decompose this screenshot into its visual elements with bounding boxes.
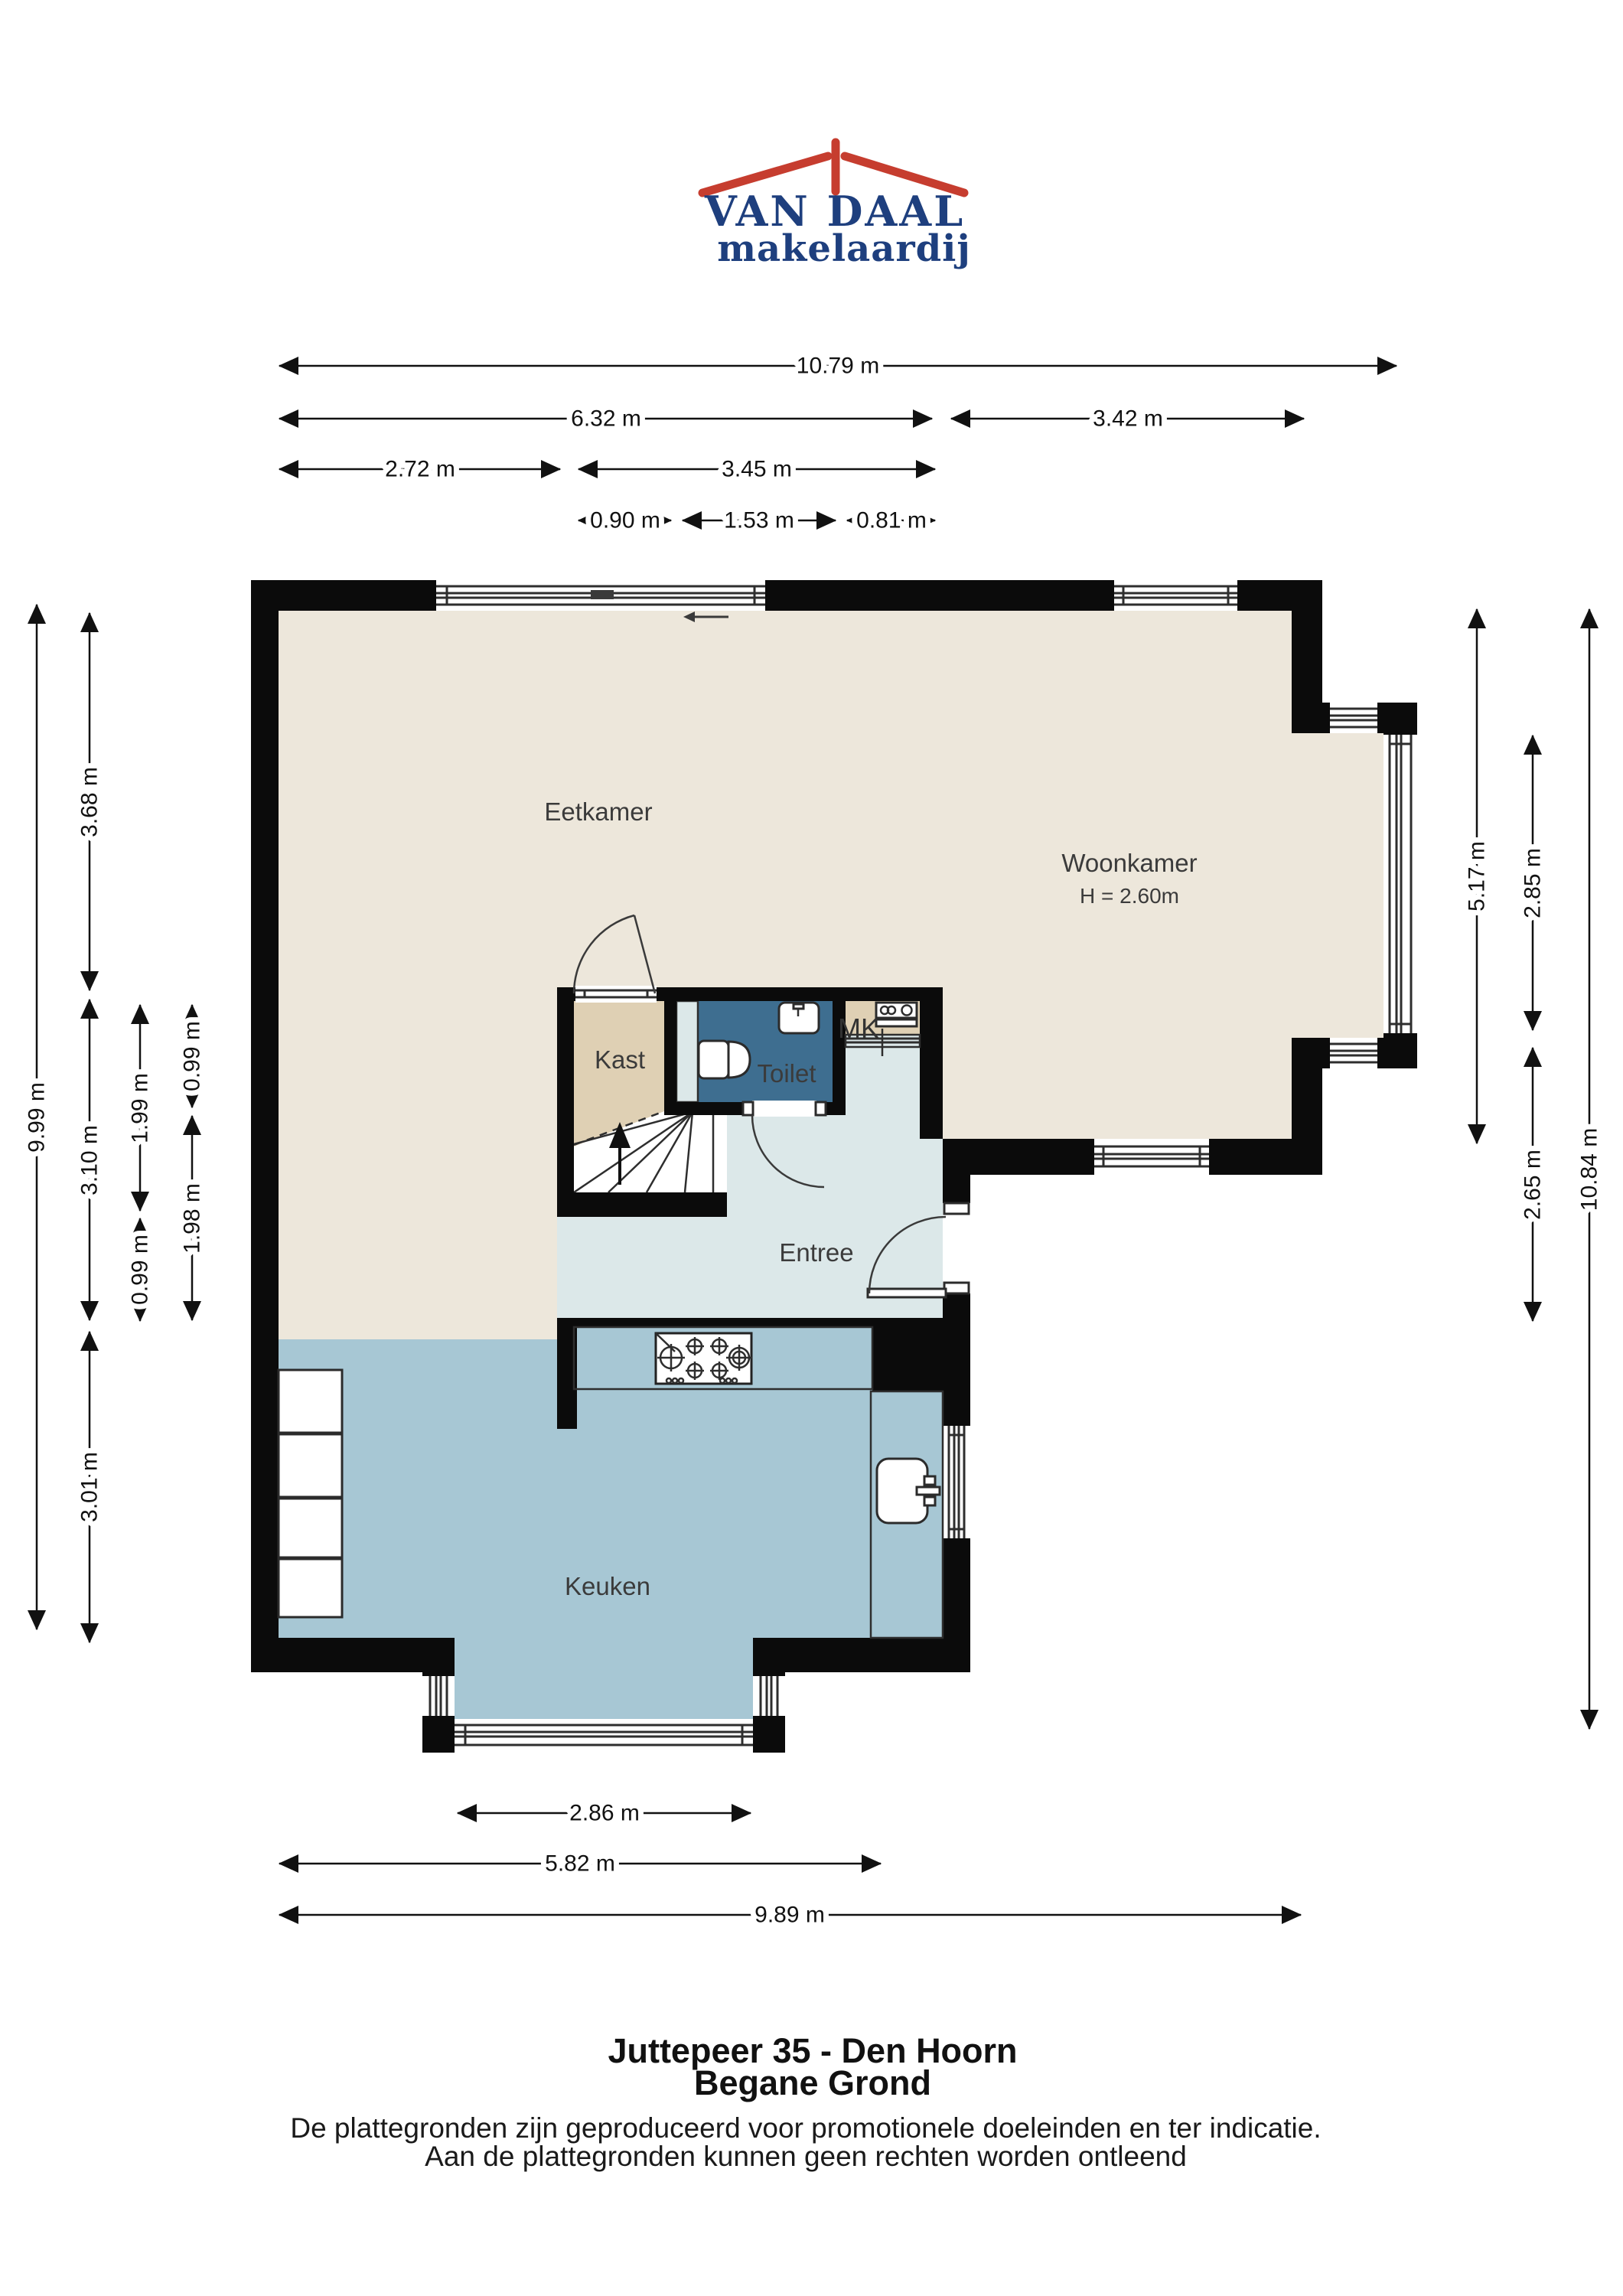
- dim-line: 9.89 m: [279, 1903, 1301, 1928]
- dimensions-top: 10.79 m 6.32 m 3.42 m 2.72 m 3.45 m 0.90…: [279, 354, 1396, 533]
- dim-line: 1.98 m: [180, 1116, 205, 1320]
- svg-text:6.32 m: 6.32 m: [571, 406, 641, 432]
- room-label-entree: Entree: [779, 1238, 853, 1267]
- svg-text:0.81 m: 0.81 m: [856, 508, 927, 533]
- svg-text:3.68 m: 3.68 m: [77, 767, 103, 837]
- wall-bottom-right: [753, 1638, 970, 1672]
- room-label-woonkamer: Woonkamer: [1061, 849, 1197, 877]
- floorplan-page: VAN DAAL makelaardij: [0, 0, 1623, 2296]
- cabinet: [279, 1499, 342, 1557]
- cabinet: [279, 1559, 342, 1617]
- floorplan-canvas: VAN DAAL makelaardij: [0, 0, 1623, 2296]
- stove-icon: [656, 1333, 752, 1384]
- window-bay-bottom: [1330, 1038, 1377, 1068]
- svg-text:10.79 m: 10.79 m: [797, 354, 879, 379]
- window-top-right: [1114, 580, 1237, 611]
- wall-counter-divider: [574, 1318, 872, 1327]
- room-note-ceiling-height: H = 2.60m: [1080, 884, 1179, 908]
- dim-line: 9.99 m: [24, 605, 50, 1629]
- svg-text:3.10 m: 3.10 m: [77, 1125, 103, 1195]
- dim-line: 0.90 m: [578, 508, 671, 533]
- wall-bottom-left: [251, 1638, 455, 1672]
- dimensions-left: 9.99 m 3.68 m 3.10 m 3.01 m 1.99 m 0.99 …: [24, 605, 205, 1642]
- dim-line: 3.42 m: [951, 406, 1304, 432]
- svg-text:0.99 m: 0.99 m: [180, 1021, 205, 1091]
- footer-disclaimer-1: De plattegronden zijn geproduceerd voor …: [290, 2112, 1321, 2144]
- dim-line: 1.99 m: [128, 1005, 153, 1211]
- wall-block-left: [557, 987, 574, 1217]
- svg-text:3.01 m: 3.01 m: [77, 1452, 103, 1522]
- toilet-bowl-icon: [699, 1041, 750, 1078]
- svg-text:0.99 m: 0.99 m: [128, 1234, 153, 1305]
- toilet-sink-icon: [779, 1003, 819, 1033]
- svg-text:5.17 m: 5.17 m: [1465, 841, 1490, 912]
- front-door-leaf: [868, 1289, 946, 1297]
- dim-line: 0.99 m: [128, 1218, 153, 1321]
- dimensions-right: 5.17 m 2.85 m 2.65 m 10.84 m: [1465, 609, 1602, 1729]
- dim-line: 3.01 m: [77, 1332, 103, 1642]
- cabinet: [279, 1434, 342, 1497]
- dim-line: 2.65 m: [1520, 1048, 1546, 1321]
- wall-kast-toilet: [664, 1001, 676, 1115]
- dim-line: 1.53 m: [683, 508, 836, 533]
- footer: Juttepeer 35 - Den Hoorn Begane Grond De…: [290, 2031, 1321, 2172]
- svg-text:2.86 m: 2.86 m: [569, 1801, 640, 1826]
- svg-text:3.45 m: 3.45 m: [722, 457, 792, 482]
- room-label-mk: MK: [838, 1013, 879, 1044]
- window-mullion: [591, 590, 614, 599]
- cabinet: [279, 1370, 342, 1433]
- svg-text:1.99 m: 1.99 m: [128, 1073, 153, 1143]
- svg-text:2.85 m: 2.85 m: [1520, 848, 1546, 918]
- window-woonkamer-bottom: [1094, 1139, 1209, 1175]
- logo: VAN DAAL makelaardij: [702, 142, 971, 270]
- kitchen-cabinets: [279, 1370, 342, 1617]
- dim-line: 3.68 m: [77, 613, 103, 990]
- svg-text:10.84 m: 10.84 m: [1577, 1128, 1602, 1211]
- footer-subtitle: Begane Grond: [694, 2063, 931, 2102]
- room-label-toilet: Toilet: [757, 1059, 816, 1088]
- dim-line: 2.85 m: [1520, 735, 1546, 1030]
- svg-text:1.53 m: 1.53 m: [724, 508, 794, 533]
- window-bay-top: [1330, 703, 1377, 733]
- footer-disclaimer-2: Aan de plattegronden kunnen geen rechten…: [425, 2141, 1187, 2172]
- dim-line: 6.32 m: [279, 406, 932, 432]
- dim-line: 0.99 m: [180, 1005, 205, 1107]
- dim-line: 3.45 m: [578, 457, 935, 482]
- room-label-keuken: Keuken: [565, 1572, 650, 1600]
- svg-text:5.82 m: 5.82 m: [545, 1851, 615, 1877]
- room-label-eetkamer: Eetkamer: [544, 797, 652, 826]
- window-kitchenbay-bottom: [455, 1719, 753, 1751]
- dim-line: 5.82 m: [279, 1851, 881, 1877]
- svg-text:9.99 m: 9.99 m: [24, 1082, 50, 1153]
- wall-right-upper: [1292, 580, 1322, 733]
- svg-text:2.72 m: 2.72 m: [385, 457, 455, 482]
- dim-line: 10.79 m: [279, 354, 1396, 379]
- window-kitchenbay-right: [753, 1676, 785, 1716]
- svg-text:3.42 m: 3.42 m: [1093, 406, 1163, 432]
- dim-line: 2.72 m: [279, 457, 560, 482]
- window-bay-right: [1383, 735, 1417, 1033]
- dimensions-bottom: 2.86 m 5.82 m 9.89 m: [279, 1801, 1301, 1928]
- svg-text:9.89 m: 9.89 m: [754, 1903, 825, 1928]
- dim-line: 3.10 m: [77, 1000, 103, 1320]
- wall-entree-woonkamer: [920, 987, 943, 1139]
- window-keuken-right: [943, 1426, 970, 1538]
- room-label-kast: Kast: [595, 1045, 645, 1074]
- wall-left: [251, 580, 279, 1672]
- logo-tagline: makelaardij: [717, 227, 971, 270]
- wall-stairs-bottom: [557, 1192, 727, 1217]
- dim-line: 10.84 m: [1577, 609, 1602, 1729]
- svg-text:1.98 m: 1.98 m: [180, 1183, 205, 1254]
- logo-roof-icon: [702, 142, 964, 193]
- dim-line: 0.81 m: [847, 508, 935, 533]
- dim-line: 5.17 m: [1465, 609, 1490, 1143]
- svg-text:0.90 m: 0.90 m: [590, 508, 660, 533]
- window-top-long: [436, 580, 765, 611]
- dim-line: 2.86 m: [458, 1801, 751, 1826]
- window-kitchenbay-left: [422, 1676, 455, 1716]
- wall-entree-kitchen-jog: [872, 1318, 970, 1391]
- svg-text:2.65 m: 2.65 m: [1520, 1150, 1546, 1220]
